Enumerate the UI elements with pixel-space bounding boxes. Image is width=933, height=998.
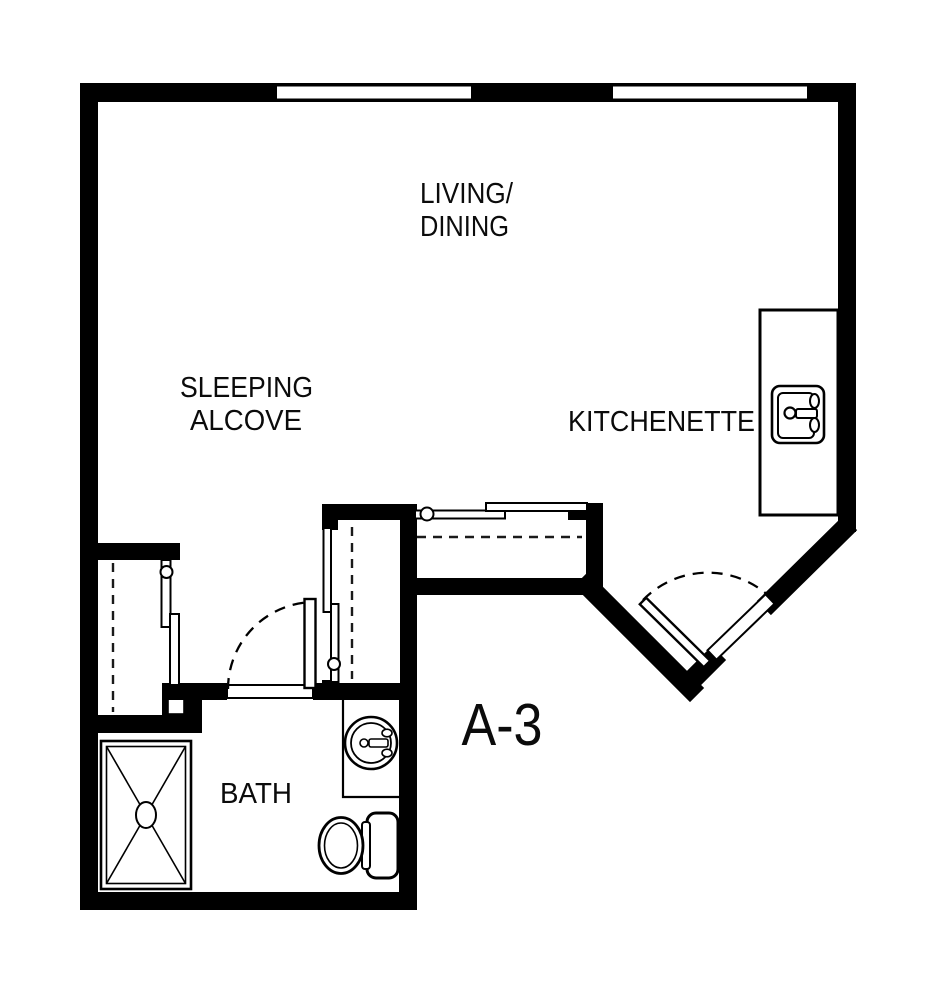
kitchenette-label: KITCHENETTE xyxy=(568,406,755,438)
wall-alcove-stub xyxy=(98,543,180,560)
sliding-door-panel xyxy=(324,528,332,612)
kitchen-sink-icon xyxy=(772,386,824,443)
sliding-door-handle-icon xyxy=(161,566,173,578)
vanity xyxy=(343,700,399,797)
sliding-door-panel xyxy=(170,614,179,685)
shower-icon xyxy=(101,741,191,889)
labels: LIVING/ DINING SLEEPING ALCOVE KITCHENET… xyxy=(180,178,755,810)
sliding-door-handle-icon xyxy=(421,508,434,521)
bath-door-swing-arc xyxy=(228,602,315,689)
living-dining-label-line1: LIVING/ xyxy=(420,178,514,210)
wall-bottom xyxy=(80,892,417,910)
floor-plan-page: LIVING/ DINING SLEEPING ALCOVE KITCHENET… xyxy=(0,0,933,998)
coat-closet xyxy=(415,503,587,537)
wall-notch xyxy=(168,699,184,714)
wall-bath-right xyxy=(399,683,417,910)
sleeping-alcove-label-line2: ALCOVE xyxy=(190,405,302,437)
wall-right xyxy=(838,102,856,532)
entry-door-swing-arc xyxy=(643,573,770,600)
wall-hall-closet-left-stub-top xyxy=(322,504,338,530)
bath-door-threshold xyxy=(227,685,313,698)
round-sink-icon xyxy=(345,717,397,769)
sliding-door-panel xyxy=(486,503,587,511)
sleeping-alcove-label-line1: SLEEPING xyxy=(180,372,313,404)
window-icon xyxy=(276,86,472,100)
wall-diagonal-right xyxy=(771,530,843,601)
wall-left xyxy=(80,83,98,910)
floor-plan-drawing: LIVING/ DINING SLEEPING ALCOVE KITCHENET… xyxy=(0,0,933,998)
bath-door-leaf-icon xyxy=(305,599,316,688)
wall-corridor xyxy=(400,504,417,700)
unit-label: A-3 xyxy=(462,692,543,758)
kitchenette-fixtures xyxy=(760,310,838,515)
bath-label: BATH xyxy=(220,778,292,810)
toilet-icon xyxy=(319,813,398,878)
living-dining-label-line2: DINING xyxy=(420,211,509,243)
window-icon xyxy=(612,86,808,100)
sliding-door-handle-icon xyxy=(328,658,340,670)
bath-door xyxy=(227,599,316,698)
hall-closet xyxy=(324,527,353,682)
entry-threshold xyxy=(708,594,775,659)
